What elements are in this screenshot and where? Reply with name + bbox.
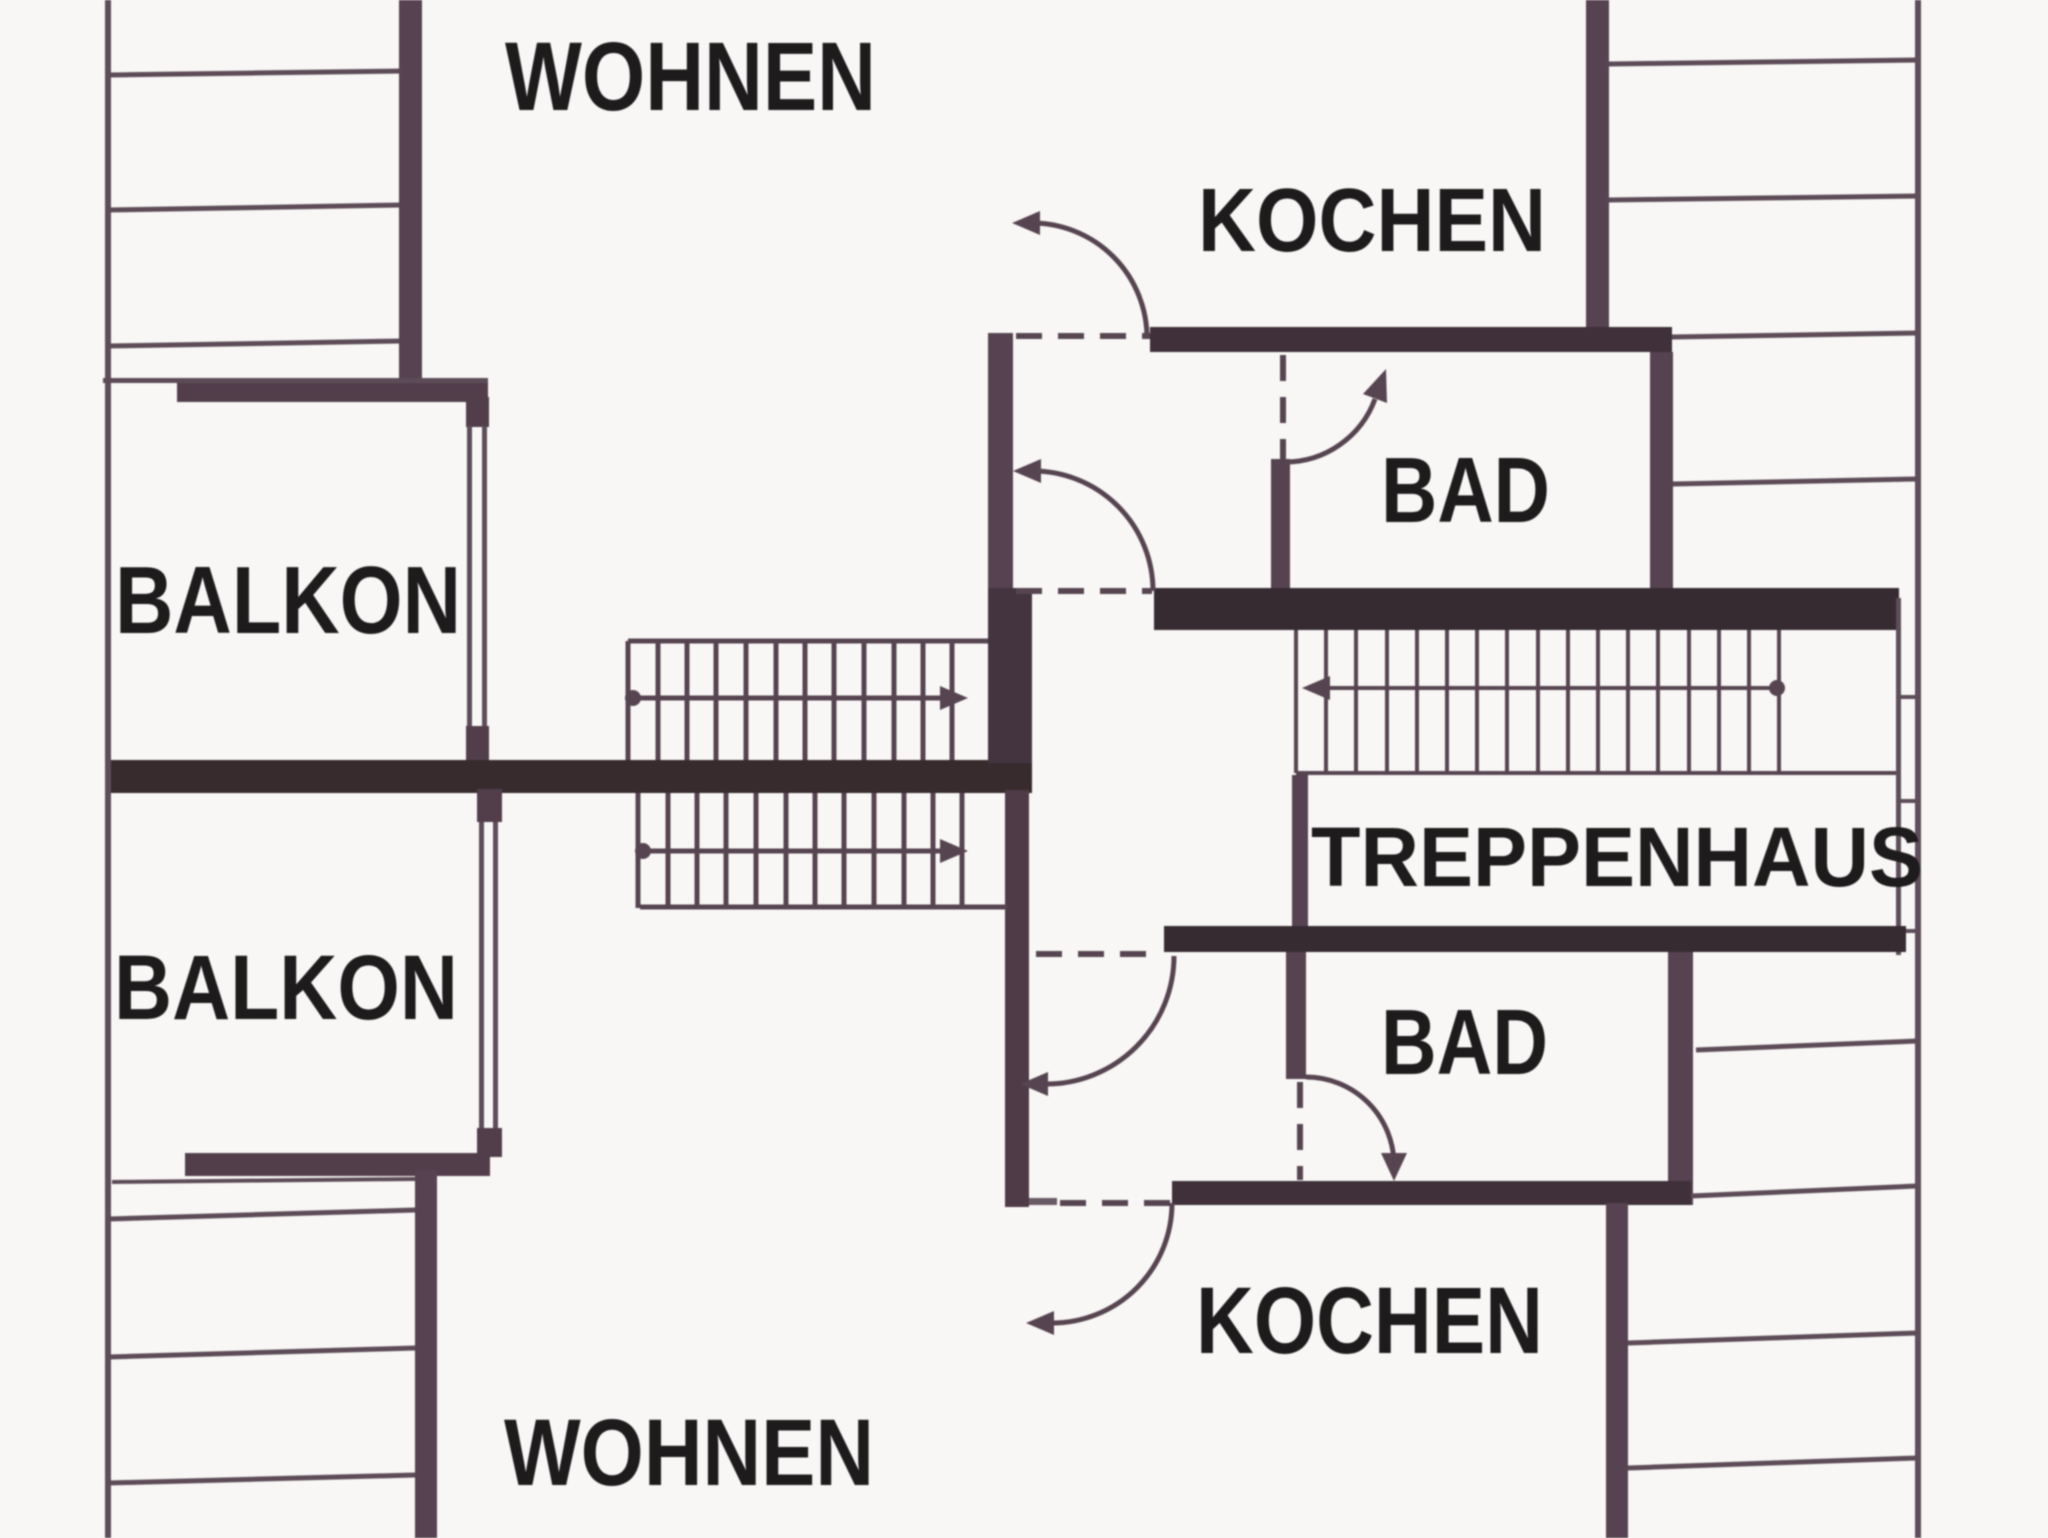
svg-text:WOHNEN: WOHNEN (504, 1400, 874, 1506)
svg-text:BAD: BAD (1381, 990, 1548, 1094)
svg-text:BALKON: BALKON (114, 937, 458, 1039)
svg-text:KOCHEN: KOCHEN (1196, 1268, 1543, 1374)
svg-text:BALKON: BALKON (115, 547, 461, 654)
svg-text:TREPPENHAUS: TREPPENHAUS (1311, 810, 1923, 904)
svg-text:BAD: BAD (1381, 438, 1550, 542)
svg-text:WOHNEN: WOHNEN (505, 22, 876, 131)
svg-text:KOCHEN: KOCHEN (1198, 171, 1546, 271)
